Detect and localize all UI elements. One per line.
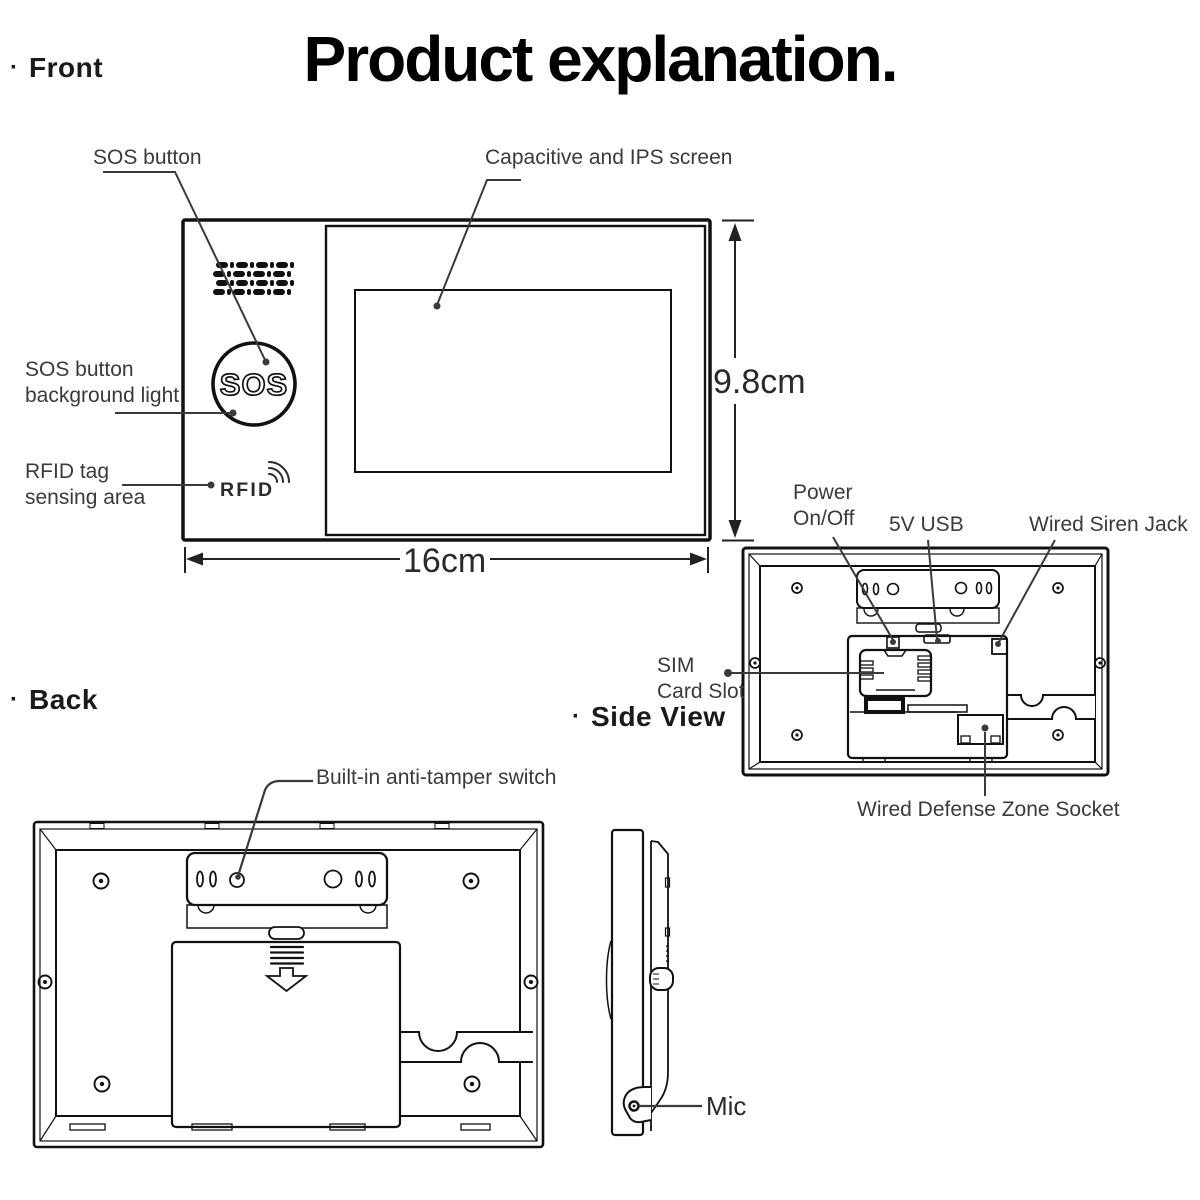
tamper-label: Built-in anti-tamper switch <box>316 765 556 791</box>
height-dim-label: 9.8cm <box>713 363 806 402</box>
arrow-left-icon <box>186 553 203 566</box>
side-recess <box>607 941 612 1019</box>
screen-leader <box>437 180 521 305</box>
rfid-area-label: RFID tag sensing area <box>25 459 145 511</box>
page-title: Product explanation. <box>304 22 897 96</box>
screen-display <box>355 290 671 472</box>
bullet-icon: · <box>10 56 18 80</box>
siren-leader <box>999 540 1055 642</box>
rfid-text: RFID <box>220 479 274 501</box>
section-back-label: Back <box>29 684 98 716</box>
siren-label: Wired Siren Jack <box>1029 512 1188 538</box>
power-label: Power On/Off <box>793 480 854 532</box>
section-back: · Back <box>10 684 98 716</box>
front-view-drawing: SOS RFID <box>183 220 710 540</box>
cover-latch <box>269 927 304 939</box>
section-front-label: Front <box>29 52 103 84</box>
bullet-icon: · <box>572 705 580 729</box>
arrow-right-icon <box>690 553 707 566</box>
back-detail-drawing <box>743 548 1108 775</box>
bullet-icon: · <box>10 688 18 712</box>
section-side-view: · Side View <box>572 701 726 733</box>
arrow-down-icon <box>729 520 742 538</box>
sos-button-label: SOS button <box>93 145 202 171</box>
defense-label: Wired Defense Zone Socket <box>857 797 1120 823</box>
arrow-up-icon <box>729 223 742 241</box>
back-view-drawing <box>34 822 543 1147</box>
screen-bezel <box>326 226 705 535</box>
side-view-drawing <box>607 830 674 1135</box>
defense-zone-socket <box>958 715 1003 744</box>
mounting-bracket <box>187 853 387 905</box>
width-dim-label: 16cm <box>403 542 486 581</box>
sos-button-text: SOS <box>220 367 288 402</box>
product-explanation-page: SOS RFID <box>0 0 1200 1200</box>
sos-light-label: SOS button background light <box>25 357 179 409</box>
section-side-label: Side View <box>591 701 726 733</box>
diagram-canvas: SOS RFID <box>0 0 1200 1200</box>
mic-label: Mic <box>706 1091 746 1122</box>
usb-label: 5V USB <box>889 512 964 538</box>
sim-label: SIM Card Slot <box>657 653 745 705</box>
screen-label: Capacitive and IPS screen <box>485 145 732 171</box>
section-front: · Front <box>10 52 103 84</box>
